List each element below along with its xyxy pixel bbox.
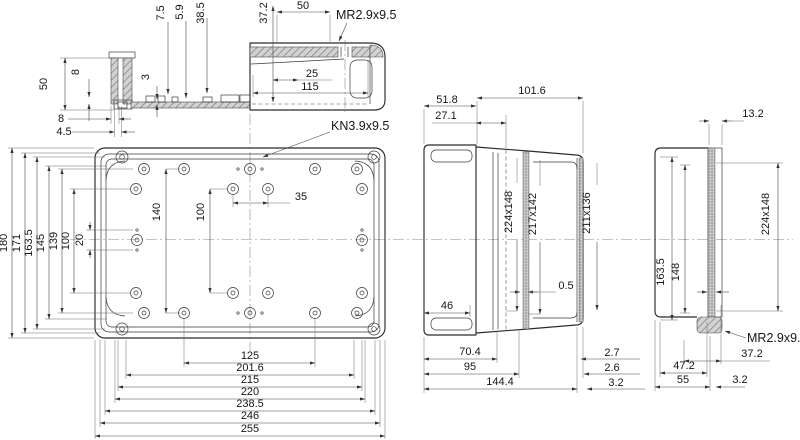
dim-125: 125 xyxy=(241,350,259,362)
dim-255: 255 xyxy=(241,423,259,435)
hole xyxy=(360,291,364,295)
hole xyxy=(357,288,368,299)
hole xyxy=(116,323,128,335)
hole xyxy=(360,238,364,242)
dim-27-1: 27.1 xyxy=(435,110,456,122)
hole xyxy=(182,311,186,315)
hole xyxy=(136,249,138,251)
hole xyxy=(142,311,146,315)
hole xyxy=(368,151,380,163)
hole xyxy=(131,184,142,195)
hole xyxy=(261,168,263,170)
section-view: 50 8 3 7.5 5.9 38.5 37.2 50 MR2.9x9.5 25 xyxy=(38,0,396,138)
dim-47-2: 47.2 xyxy=(673,360,694,372)
section-dimensions: 50 8 3 7.5 5.9 38.5 37.2 50 MR2.9x9.5 25 xyxy=(38,0,396,138)
hole xyxy=(228,288,239,299)
dim-38-5: 38.5 xyxy=(195,2,207,23)
hole xyxy=(136,229,138,231)
dim-8-horiz: 8 xyxy=(58,113,64,125)
hole xyxy=(179,164,190,175)
end-view: 13.2 224x148 163.5 148 MR2.9x9.5 37.2 4 xyxy=(655,108,800,391)
dim-201-6: 201.6 xyxy=(236,362,264,374)
dim-246: 246 xyxy=(241,410,259,422)
hole xyxy=(313,167,317,171)
hole xyxy=(355,311,359,315)
dim-95: 95 xyxy=(464,361,476,373)
hole xyxy=(313,311,317,315)
hole xyxy=(368,323,380,335)
hole xyxy=(310,164,321,175)
dim-4-5: 4.5 xyxy=(56,126,71,138)
hole xyxy=(139,164,150,175)
hole xyxy=(360,187,364,191)
dim-163-5: 163.5 xyxy=(23,229,35,257)
dim-163-5-end: 163.5 xyxy=(655,258,667,286)
hole xyxy=(228,184,239,195)
dim-46: 46 xyxy=(441,300,453,312)
section-size-224x148: 224x148 xyxy=(503,191,515,233)
dim-51-8: 51.8 xyxy=(436,94,457,106)
end-dimensions: 13.2 224x148 163.5 148 MR2.9x9.5 37.2 4 xyxy=(655,108,800,391)
hole xyxy=(357,184,368,195)
hole xyxy=(357,235,368,246)
dim-115: 115 xyxy=(301,81,319,93)
hole xyxy=(120,155,125,160)
dim-100-inner: 100 xyxy=(195,203,207,221)
section-size-217x142: 217x142 xyxy=(527,193,539,235)
hole xyxy=(310,308,321,319)
dim-139: 139 xyxy=(48,232,60,250)
dim-145: 145 xyxy=(35,234,47,252)
dim-148-end: 148 xyxy=(670,263,682,281)
dim-50-height: 50 xyxy=(38,78,50,90)
hole xyxy=(179,308,190,319)
thread-label-mr-top: MR2.9x9.5 xyxy=(336,8,396,22)
dim-37-2-top: 37.2 xyxy=(258,2,270,23)
hole xyxy=(372,155,377,160)
hole xyxy=(134,187,138,191)
dim-37-2-end: 37.2 xyxy=(741,348,762,360)
hole xyxy=(372,327,377,332)
section-size-224x148-end: 224x148 xyxy=(760,193,772,235)
dim-20: 20 xyxy=(74,234,86,246)
dim-25: 25 xyxy=(306,68,318,80)
hole xyxy=(135,238,139,242)
hole xyxy=(237,168,239,170)
hole xyxy=(132,235,143,246)
hole xyxy=(139,308,150,319)
hole xyxy=(142,167,146,171)
dim-140: 140 xyxy=(151,203,163,221)
hole xyxy=(261,312,263,314)
mounting-holes xyxy=(116,151,380,335)
hole xyxy=(120,327,125,332)
dim-3-2-side: 3.2 xyxy=(608,377,623,389)
dim-7-5: 7.5 xyxy=(155,5,167,20)
hole xyxy=(263,288,274,299)
dim-238-5: 238.5 xyxy=(236,398,264,410)
dim-220: 220 xyxy=(241,386,259,398)
dim-101-6: 101.6 xyxy=(518,85,546,97)
hole xyxy=(266,187,270,191)
hole xyxy=(134,291,138,295)
hole xyxy=(231,187,235,191)
technical-drawing-canvas: 50 8 3 7.5 5.9 38.5 37.2 50 MR2.9x9.5 25 xyxy=(0,0,800,440)
dim-100-left: 100 xyxy=(60,232,72,250)
dim-55: 55 xyxy=(677,374,689,386)
dim-2-6: 2.6 xyxy=(604,362,619,374)
dim-215: 215 xyxy=(241,374,259,386)
hole xyxy=(182,167,186,171)
hole xyxy=(361,229,363,231)
hole xyxy=(263,184,274,195)
hole xyxy=(237,312,239,314)
centerlines xyxy=(70,40,793,352)
dim-2-7: 2.7 xyxy=(604,347,619,359)
dim-3-2-end: 3.2 xyxy=(732,374,747,386)
dim-3: 3 xyxy=(140,74,152,80)
hole xyxy=(266,291,270,295)
dim-70-4: 70.4 xyxy=(459,346,480,358)
dim-5-9: 5.9 xyxy=(174,4,186,19)
plan-view: KN3.9x9.5 140 100 35 180 171 xyxy=(0,119,389,439)
hole xyxy=(131,288,142,299)
dim-171: 171 xyxy=(11,234,23,252)
dim-144-4: 144.4 xyxy=(486,376,514,388)
side-dimensions: 101.6 51.8 27.1 224x148 217x142 211x136 … xyxy=(424,85,645,393)
hole xyxy=(361,249,363,251)
dim-35: 35 xyxy=(295,191,307,203)
dim-180: 180 xyxy=(0,234,10,252)
hole xyxy=(355,167,359,171)
thread-label-kn: KN3.9x9.5 xyxy=(331,119,389,133)
plan-dimensions: KN3.9x9.5 140 100 35 180 171 xyxy=(0,119,389,439)
section-size-211x136: 211x136 xyxy=(581,192,593,233)
dim-8-vert: 8 xyxy=(70,69,82,75)
side-view: 101.6 51.8 27.1 224x148 217x142 211x136 … xyxy=(424,85,645,393)
hole xyxy=(352,308,363,319)
dim-50-top: 50 xyxy=(297,0,309,12)
hole xyxy=(352,164,363,175)
thread-label-mr-right: MR2.9x9.5 xyxy=(747,331,800,345)
dim-0-5: 0.5 xyxy=(558,280,573,292)
dim-13-2: 13.2 xyxy=(742,108,763,120)
hole xyxy=(231,291,235,295)
